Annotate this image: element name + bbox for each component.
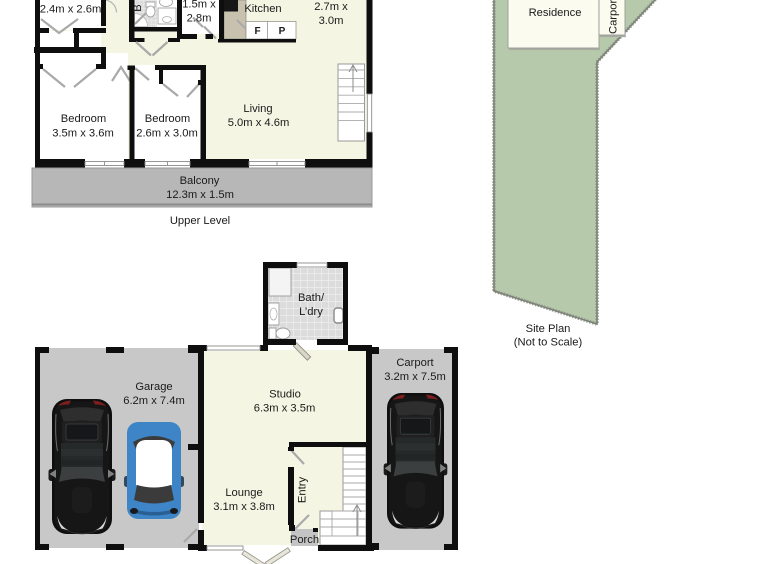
svg-text:L’dry: L’dry xyxy=(299,306,323,318)
svg-text:Living: Living xyxy=(243,103,272,115)
svg-text:2.8m: 2.8m xyxy=(187,12,212,24)
svg-text:Residence: Residence xyxy=(529,7,582,19)
svg-text:P: P xyxy=(279,26,286,37)
svg-text:Studio: Studio xyxy=(269,389,301,401)
svg-text:F: F xyxy=(254,26,260,37)
svg-text:5.0m x 4.6m: 5.0m x 4.6m xyxy=(228,117,290,129)
svg-text:Carport: Carport xyxy=(608,0,620,34)
svg-text:12.3m x 1.5m: 12.3m x 1.5m xyxy=(166,189,234,201)
svg-text:Porch: Porch xyxy=(290,534,319,546)
svg-text:Balcony: Balcony xyxy=(180,175,220,187)
svg-text:3.0m: 3.0m xyxy=(319,15,344,27)
svg-text:3.1m x 3.8m: 3.1m x 3.8m xyxy=(213,501,275,513)
svg-text:B: B xyxy=(132,4,144,11)
svg-text:6.3m x 3.5m: 6.3m x 3.5m xyxy=(254,403,316,415)
svg-text:6.2m x 7.4m: 6.2m x 7.4m xyxy=(123,395,185,407)
svg-text:Carport: Carport xyxy=(396,357,434,369)
svg-text:Bedroom: Bedroom xyxy=(61,113,106,125)
svg-text:2.7m x: 2.7m x xyxy=(314,1,348,13)
svg-text:Upper Level: Upper Level xyxy=(170,215,230,227)
svg-text:Bath/: Bath/ xyxy=(298,292,325,304)
svg-text:Entry: Entry xyxy=(297,477,309,504)
svg-text:(Not to Scale): (Not to Scale) xyxy=(514,337,583,349)
svg-text:2.4m x 2.6m: 2.4m x 2.6m xyxy=(40,4,102,16)
svg-text:Garage: Garage xyxy=(135,381,172,393)
svg-text:Lounge: Lounge xyxy=(225,487,262,499)
svg-text:3.5m x 3.6m: 3.5m x 3.6m xyxy=(52,127,114,139)
svg-text:3.2m x 7.5m: 3.2m x 7.5m xyxy=(384,371,446,383)
svg-text:2.6m x 3.0m: 2.6m x 3.0m xyxy=(136,127,198,139)
svg-text:Site Plan: Site Plan xyxy=(526,323,571,335)
svg-text:Bedroom: Bedroom xyxy=(145,113,190,125)
svg-text:Kitchen: Kitchen xyxy=(244,3,281,15)
svg-text:1.5m x: 1.5m x xyxy=(182,0,216,10)
